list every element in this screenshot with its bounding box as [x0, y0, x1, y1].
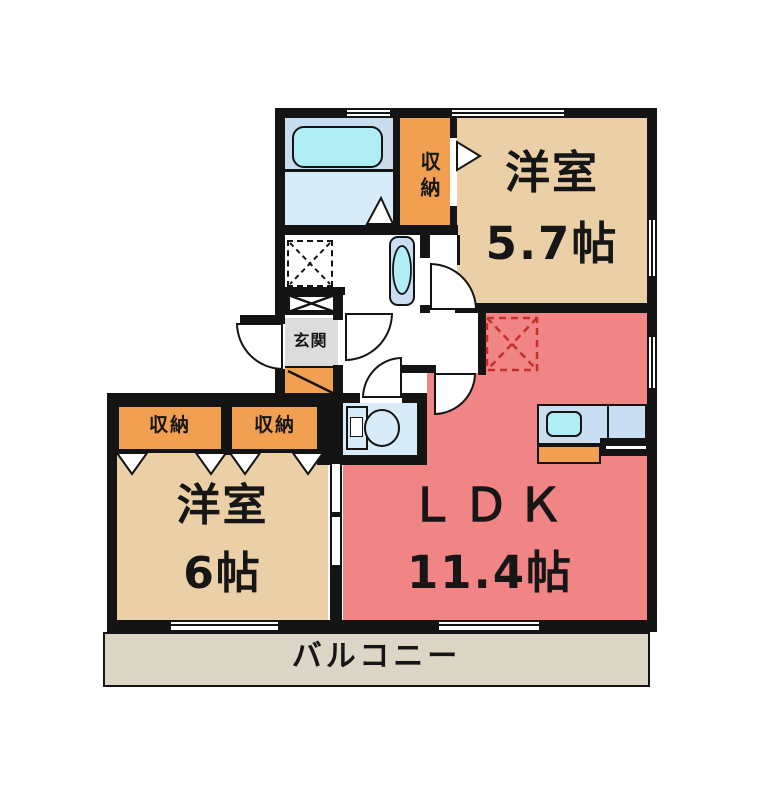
washing-machine-pan [287, 240, 333, 287]
window-bathroom-top [347, 108, 390, 118]
window-ldk-balcony [439, 620, 539, 632]
wall-entrance-right-b [333, 365, 343, 395]
label-balcony: バルコニー [103, 642, 650, 672]
label-storage-hall: 収納 [411, 137, 439, 217]
wall-stub-ldk [478, 313, 486, 375]
label-entrance: 玄関 [283, 333, 338, 349]
label-ldk: ＬＤＫ 11.4帖 [380, 482, 600, 595]
wall-entry-top [240, 315, 285, 323]
label-storage-right: 収納 [228, 416, 322, 435]
opening-storage-hall [450, 138, 457, 206]
label-ldk-area: 11.4帖 [380, 550, 600, 595]
wall-toilet-bottom [333, 455, 427, 465]
label-western-upper-name: 洋室 [457, 150, 647, 195]
sliding-door-panel-2 [331, 516, 341, 566]
bathroom-divider [283, 169, 393, 172]
bathtub [292, 126, 383, 168]
label-western-upper: 洋室 5.7帖 [457, 150, 647, 266]
window-western-lower-balcony [171, 620, 278, 632]
sliding-door-panel-1 [331, 463, 341, 513]
window-western-upper-top [452, 108, 564, 118]
floor-plan: 洋室 5.7帖 ＬＤＫ 11.4帖 洋室 6帖 バルコニー 玄関 収納 収納 収… [0, 0, 767, 800]
wall-western-ldk [455, 303, 657, 313]
label-western-lower-area: 6帖 [115, 552, 330, 596]
kitchen-stove-slit [606, 446, 646, 449]
label-western-lower-name: 洋室 [115, 484, 330, 528]
opening-western-upper [420, 258, 430, 305]
wall-hall-ldk [400, 365, 436, 373]
wall-bath-bottom [283, 225, 458, 235]
wall-closet-top [107, 393, 343, 403]
window-western-upper-right [647, 220, 657, 276]
toilet-tank-lid [350, 417, 363, 437]
toilet-door-arc [362, 357, 402, 398]
washbasin-unit [389, 236, 415, 306]
label-ldk-name: ＬＤＫ [380, 482, 600, 528]
window-ldk-right [647, 337, 657, 388]
kitchen-sink [546, 411, 582, 437]
kitchen-cabinet [537, 445, 601, 464]
label-western-lower: 洋室 6帖 [115, 484, 330, 596]
shoe-cabinet [285, 292, 338, 315]
bathroom-floor [283, 172, 393, 227]
label-storage-left: 収納 [115, 416, 225, 435]
washroom-door-arc [345, 313, 393, 361]
front-door-arc [236, 323, 283, 370]
wall-bath-storage [393, 118, 400, 228]
label-western-upper-area: 5.7帖 [457, 221, 647, 266]
